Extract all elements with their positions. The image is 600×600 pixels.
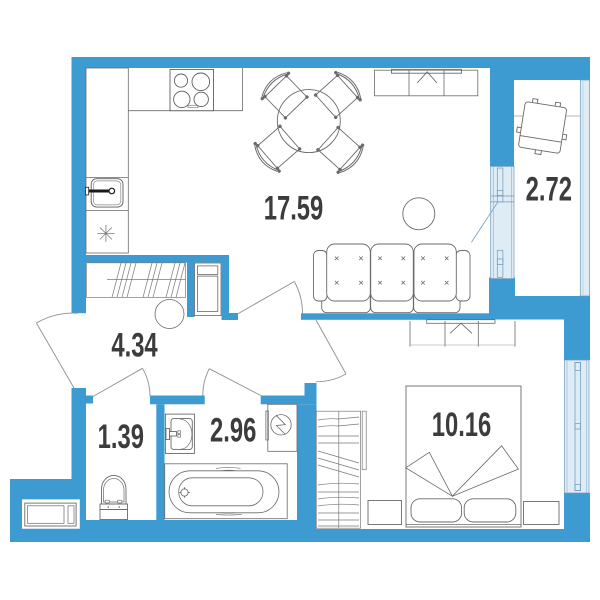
svg-text:2.96: 2.96 bbox=[210, 411, 256, 449]
svg-text:2.72: 2.72 bbox=[526, 170, 572, 208]
svg-text:17.59: 17.59 bbox=[264, 189, 324, 227]
svg-text:1.39: 1.39 bbox=[98, 418, 144, 456]
svg-text:10.16: 10.16 bbox=[432, 406, 492, 444]
svg-text:4.34: 4.34 bbox=[111, 326, 158, 364]
